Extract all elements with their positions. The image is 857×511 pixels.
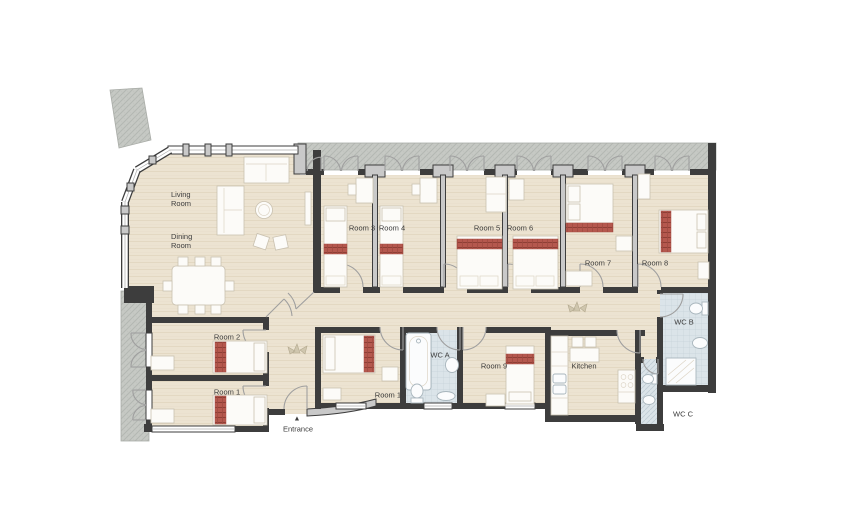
pillow (697, 214, 706, 230)
corner-exterior-patch (110, 88, 151, 148)
chair (163, 281, 172, 291)
bed-blanket (661, 211, 671, 252)
bench (566, 271, 592, 286)
label-room-7: Room 7 (585, 259, 611, 268)
sectional-sofa (217, 186, 244, 235)
coffee-table (256, 202, 273, 219)
chair (211, 257, 221, 266)
label-living-room: Living Room (171, 190, 197, 208)
label-room-10: Room 10 (375, 391, 405, 400)
chair (195, 257, 205, 266)
label-entrance: Entrance (283, 425, 313, 434)
bed-blanket (566, 223, 613, 232)
nightstand (382, 367, 398, 381)
entrance-arrow-icon: ▲ (294, 416, 301, 423)
toilet (411, 384, 423, 398)
toilet (690, 303, 703, 314)
label-room-1: Room 1 (214, 388, 240, 397)
desk (420, 178, 437, 203)
label-room-5: Room 5 (474, 224, 500, 233)
chair (572, 337, 583, 347)
nightstand (151, 409, 174, 423)
chair (178, 305, 188, 314)
nightstand (616, 236, 632, 251)
wardrobe (486, 394, 505, 406)
bed-blanket (364, 336, 374, 372)
pillow (326, 208, 345, 221)
bed-blanket (324, 244, 347, 254)
chair (211, 305, 221, 314)
label-room-8: Room 8 (642, 259, 668, 268)
chair (585, 337, 596, 347)
pillow (697, 232, 706, 248)
dresser (509, 179, 524, 200)
floor-plan-page: Living Room Dining Room Room 3 Room 4 Ro… (0, 0, 857, 511)
wardrobe (486, 177, 506, 212)
desk-chair (348, 184, 356, 195)
label-room-6: Room 6 (507, 224, 533, 233)
bed-blanket (457, 239, 502, 249)
nightstand (698, 262, 709, 279)
armchair (273, 235, 288, 250)
label-room-2: Room 2 (214, 333, 240, 342)
toilet (643, 375, 654, 384)
pillow (325, 337, 335, 370)
label-room-9: Room 9 (481, 362, 507, 371)
dresser (323, 388, 341, 400)
pillow (509, 392, 531, 401)
label-dining-room: Dining Room (171, 232, 197, 250)
label-wc-b: WC B (674, 318, 694, 327)
wc-c-floor (640, 359, 658, 426)
wardrobe (638, 174, 650, 199)
label-wc-c: WC C (673, 410, 693, 419)
nightstand (151, 356, 174, 370)
desk-chair (412, 184, 420, 195)
bed-blanket (215, 342, 226, 372)
kitchen-table (570, 348, 599, 362)
pillow (568, 186, 580, 202)
sink (643, 396, 655, 405)
pillow (254, 397, 265, 423)
label-kitchen: Kitchen (571, 362, 596, 371)
bed-blanket (380, 244, 403, 254)
desk (356, 178, 373, 203)
left-exterior-strip (121, 291, 149, 441)
sink (693, 338, 708, 349)
pillow (568, 204, 580, 220)
tv-console (305, 192, 311, 225)
kitchen-sink (553, 374, 566, 383)
chair (195, 305, 205, 314)
label-wc-a: WC A (430, 351, 449, 360)
chair (225, 281, 234, 291)
floor-plan-drawing (0, 0, 857, 511)
label-room-3: Room 3 (349, 224, 375, 233)
bed-blanket (506, 354, 534, 364)
dining-table (172, 266, 225, 305)
label-room-4: Room 4 (379, 224, 405, 233)
sink (446, 358, 459, 373)
chair (178, 257, 188, 266)
pillow (382, 208, 401, 221)
pillow (254, 343, 265, 371)
bed-blanket (513, 239, 558, 249)
sofa (244, 157, 289, 183)
bidet (437, 392, 455, 401)
bed-blanket (215, 396, 226, 424)
